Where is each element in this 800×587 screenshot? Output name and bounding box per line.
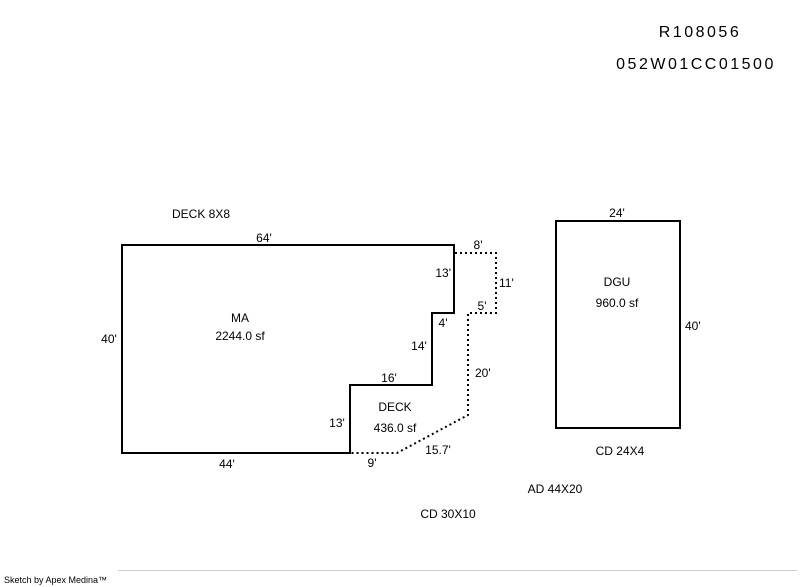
deck-8x8-note: DECK 8X8: [172, 207, 230, 221]
ma-dim-step-16: 16': [381, 371, 397, 385]
sketch-canvas: R108056 052W01CC01500 DECK 8X8 64' 40' 4…: [0, 0, 800, 587]
ad-dim-diagonal: 15.7': [425, 443, 451, 457]
dgu-area: 960.0 sf: [596, 296, 639, 310]
dgu-label: DGU: [604, 275, 631, 289]
dgu-dim-top: 24': [609, 206, 625, 220]
dgu-note: CD 24X4: [596, 444, 645, 458]
ma-dim-step-4: 4': [439, 316, 448, 330]
deck-dim-bottom: 9': [368, 456, 377, 470]
ad-dim-top: 8': [474, 238, 483, 252]
deck-label: DECK: [378, 400, 411, 414]
ma-dim-right-mid: 14': [411, 339, 427, 353]
cd-30x10-note: CD 30X10: [420, 507, 476, 521]
ad-dim-right: 11': [499, 276, 514, 290]
dgu-dim-right: 40': [685, 319, 701, 333]
garage-outline: [556, 221, 680, 428]
sketch-page: R108056 052W01CC01500 DECK 8X8 64' 40' 4…: [0, 0, 800, 587]
ma-dim-top: 64': [256, 231, 272, 245]
ma-dim-left: 40': [101, 332, 117, 346]
record-id: R108056: [659, 24, 741, 41]
ma-dim-bottom: 44': [219, 457, 235, 471]
ad-dim-inner-top: 5': [478, 299, 487, 313]
ma-label: MA: [231, 311, 249, 325]
ma-dim-right-upper: 13': [435, 266, 451, 280]
sketch-credit: Sketch by Apex Medina™: [4, 575, 107, 585]
deck-dim-left: 13': [329, 416, 345, 430]
deck-area: 436.0 sf: [374, 421, 417, 435]
ma-area: 2244.0 sf: [215, 329, 265, 343]
parcel-id: 052W01CC01500: [616, 56, 776, 73]
ad-dim-right-lower: 20': [475, 366, 491, 380]
ad-label: AD 44X20: [528, 482, 583, 496]
